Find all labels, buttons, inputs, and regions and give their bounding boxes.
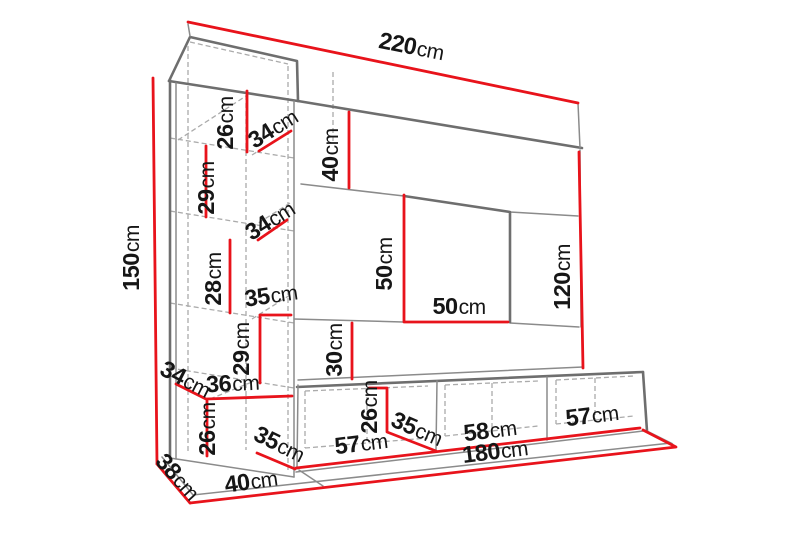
label-tower-shelf-3-height: 28cm: [200, 252, 226, 305]
label-tv-recess-height: 50cm: [371, 237, 397, 290]
label-tower-shelf-5-height: 26cm: [194, 402, 220, 455]
label-gap-above-bench: 30cm: [321, 323, 347, 376]
label-tower-bottom-shelf-width: 36cm: [205, 369, 259, 398]
label-tv-recess-width: 50cm: [432, 293, 485, 319]
label-top-cabinet-height: 40cm: [317, 128, 343, 181]
furniture-dimension-diagram: 220cm 150cm 26cm 34cm 40cm 29cm 34cm 28c…: [0, 0, 800, 533]
label-tower-shelf-4-height: 29cm: [228, 322, 254, 375]
diagram-canvas: 220cm 150cm 26cm 34cm 40cm 29cm 34cm 28c…: [0, 0, 800, 533]
label-tower-shelf-1-height: 26cm: [212, 96, 238, 149]
label-right-side-height: 120cm: [549, 244, 575, 310]
label-bench-height: 26cm: [356, 380, 382, 433]
label-total-height: 150cm: [118, 225, 144, 291]
label-tower-shelf-2-height: 29cm: [193, 161, 219, 214]
